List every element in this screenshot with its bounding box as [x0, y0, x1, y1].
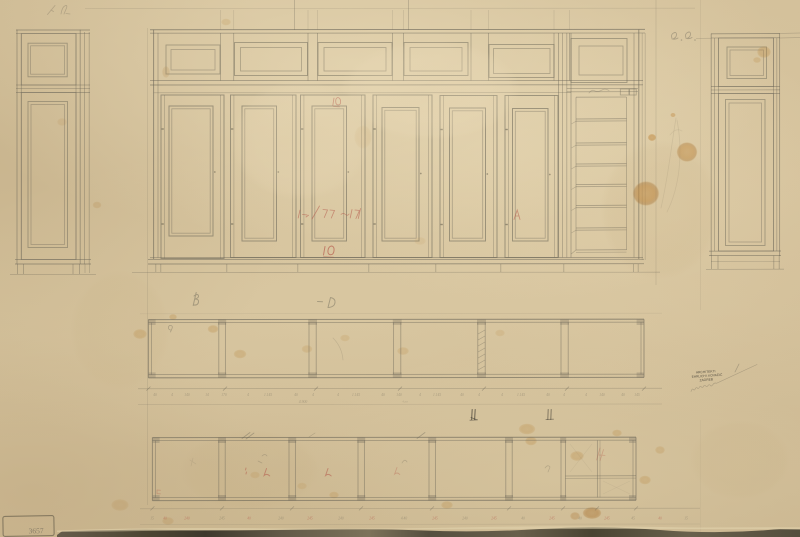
svg-text:170: 170 [221, 393, 227, 397]
svg-text:4: 4 [585, 393, 587, 397]
svg-text:245: 245 [604, 517, 610, 521]
svg-text:240: 240 [184, 517, 190, 521]
svg-text:240: 240 [462, 517, 468, 521]
svg-text:40: 40 [621, 393, 625, 397]
svg-text:145: 145 [634, 393, 640, 397]
svg-text:40: 40 [163, 517, 167, 521]
svg-text:4: 4 [419, 393, 421, 397]
svg-text:40: 40 [546, 393, 550, 397]
svg-text:40: 40 [247, 517, 251, 521]
svg-text:140: 140 [599, 393, 605, 397]
svg-text:4: 4 [478, 393, 480, 397]
svg-text:15: 15 [684, 517, 688, 521]
svg-text:40: 40 [460, 393, 464, 397]
svg-text:4: 4 [501, 393, 503, 397]
svg-text:15: 15 [150, 517, 154, 521]
svg-text:4: 4 [312, 393, 314, 397]
svg-text:40: 40 [521, 517, 525, 521]
svg-text:4: 4 [171, 393, 173, 397]
svg-text:40: 40 [153, 393, 157, 397]
svg-text:245: 245 [491, 517, 497, 521]
svg-text:45: 45 [631, 517, 635, 521]
svg-text:240: 240 [278, 517, 284, 521]
svg-text:240: 240 [338, 517, 344, 521]
svg-text:245: 245 [307, 517, 313, 521]
svg-text:40: 40 [658, 517, 662, 521]
svg-text:4.900: 4.900 [299, 400, 308, 404]
svg-text:3657: 3657 [29, 526, 44, 535]
svg-text:245: 245 [432, 517, 438, 521]
svg-text:4: 4 [337, 393, 339, 397]
svg-text:4: 4 [247, 393, 249, 397]
svg-text:1.145: 1.145 [517, 393, 525, 397]
svg-text:140: 140 [396, 393, 402, 397]
svg-text:14: 14 [205, 393, 209, 397]
svg-text:245: 245 [549, 517, 555, 521]
svg-text:245: 245 [369, 517, 375, 521]
svg-text:40: 40 [381, 393, 385, 397]
svg-text:1.145: 1.145 [433, 393, 441, 397]
svg-text:40: 40 [578, 517, 582, 521]
svg-text:140: 140 [184, 393, 190, 397]
svg-text:245: 245 [219, 517, 225, 521]
svg-text:4: 4 [563, 393, 565, 397]
svg-text:1.145: 1.145 [352, 393, 360, 397]
svg-text:4.40: 4.40 [401, 517, 407, 521]
svg-text:40: 40 [294, 393, 298, 397]
svg-text:ZAGREB: ZAGREB [699, 377, 714, 382]
svg-text:4.eo: 4.eo [402, 400, 408, 404]
svg-text:1.145: 1.145 [264, 393, 272, 397]
